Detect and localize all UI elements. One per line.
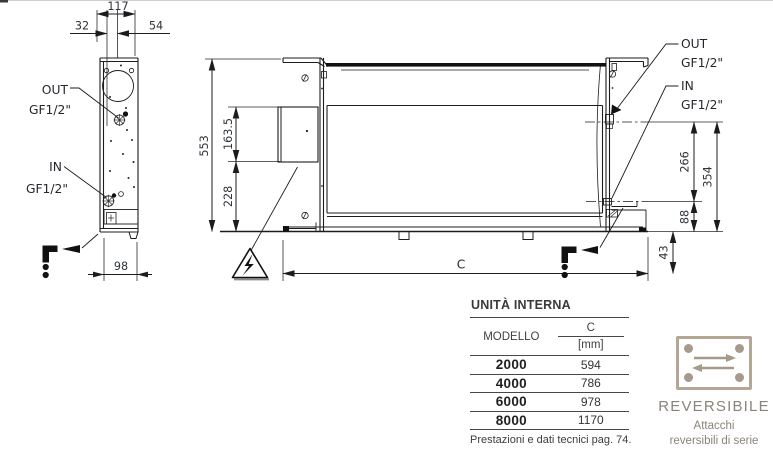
table-footnote: Prestazioni e dati tecnici pag. 74. bbox=[470, 430, 629, 446]
side-in-fitting bbox=[102, 192, 123, 208]
header-divider bbox=[558, 336, 624, 337]
model-cell: 4000 bbox=[470, 376, 553, 391]
table-row: 8000 1170 bbox=[470, 412, 629, 431]
column-header-c: C [mm] bbox=[553, 318, 629, 355]
side-view: 117 32 54 98 OUT GF1/2" IN GF1/2" bbox=[26, 0, 170, 281]
dim-height: 553 bbox=[198, 135, 211, 156]
dim-in-height: 88 bbox=[679, 210, 692, 224]
c-value-cell: 594 bbox=[553, 358, 629, 372]
dim-length: C bbox=[457, 258, 466, 272]
electrical-box bbox=[278, 107, 318, 162]
front-out-fitting bbox=[606, 105, 622, 129]
drain-direction-arrow-icon bbox=[62, 245, 80, 253]
table-row: 4000 786 bbox=[470, 375, 629, 394]
badge-subtitle: Attacchi reversibili di serie bbox=[655, 419, 773, 449]
front-in-pipe-label: GF1/2" bbox=[681, 98, 723, 112]
table-row: 6000 978 bbox=[470, 393, 629, 412]
c-value-cell: 978 bbox=[553, 395, 629, 409]
double-arrow-icon bbox=[690, 351, 738, 375]
side-in-label: IN bbox=[49, 160, 62, 174]
front-out-pipe-label: GF1/2" bbox=[681, 56, 723, 70]
model-cell: 2000 bbox=[470, 357, 553, 372]
dim-drain-height: 43 bbox=[658, 245, 671, 259]
technical-drawing-page: 117 32 54 98 OUT GF1/2" IN GF1/2" bbox=[0, 0, 773, 459]
power-entry bbox=[283, 226, 289, 232]
side-out-label: OUT bbox=[42, 83, 69, 97]
dim-back-offset: 54 bbox=[149, 20, 163, 33]
front-in-label: IN bbox=[681, 79, 694, 93]
dim-box-height: 163.5 bbox=[222, 118, 235, 150]
drain-direction-arrow-icon bbox=[581, 246, 598, 254]
front-view: 553 163.5 228 266 354 88 43 C OUT GF1/2"… bbox=[198, 37, 723, 281]
dim-front-offset: 32 bbox=[75, 20, 89, 33]
column-header-model: MODELLO bbox=[470, 318, 553, 355]
badge-title: REVERSIBILE bbox=[655, 398, 773, 415]
table-row: 2000 594 bbox=[470, 356, 629, 375]
front-out-label: OUT bbox=[681, 37, 708, 51]
model-cell: 6000 bbox=[470, 394, 553, 409]
side-out-pipe-label: GF1/2" bbox=[29, 103, 71, 117]
dim-depth: 117 bbox=[107, 0, 128, 13]
electrical-hazard-icon bbox=[233, 249, 270, 280]
dim-box-bottom: 228 bbox=[222, 186, 235, 207]
column-header-c-label: C bbox=[587, 322, 595, 334]
reversible-badge: REVERSIBILE Attacchi reversibili di seri… bbox=[655, 336, 773, 449]
c-value-cell: 1170 bbox=[553, 413, 629, 427]
column-header-unit: [mm] bbox=[578, 339, 604, 351]
dim-out-in-gap: 266 bbox=[679, 151, 692, 172]
dim-out-height: 354 bbox=[702, 166, 715, 187]
table-title: UNITÀ INTERNA bbox=[470, 296, 629, 318]
indoor-unit-table: UNITÀ INTERNA MODELLO C [mm] 2000 594 40… bbox=[470, 296, 629, 446]
badge-subtitle-line2: reversibili di serie bbox=[655, 434, 773, 449]
badge-subtitle-line1: Attacchi bbox=[655, 419, 773, 434]
reversible-connections-icon bbox=[676, 336, 752, 390]
side-out-fitting bbox=[114, 111, 129, 126]
c-value-cell: 786 bbox=[553, 376, 629, 390]
table-header: MODELLO C [mm] bbox=[470, 318, 629, 356]
dim-base-depth: 98 bbox=[114, 260, 128, 273]
page-corner-mark bbox=[0, 0, 8, 3]
drain-elbow-icon bbox=[43, 246, 58, 279]
model-cell: 8000 bbox=[470, 413, 553, 428]
side-in-pipe-label: GF1/2" bbox=[26, 182, 68, 196]
